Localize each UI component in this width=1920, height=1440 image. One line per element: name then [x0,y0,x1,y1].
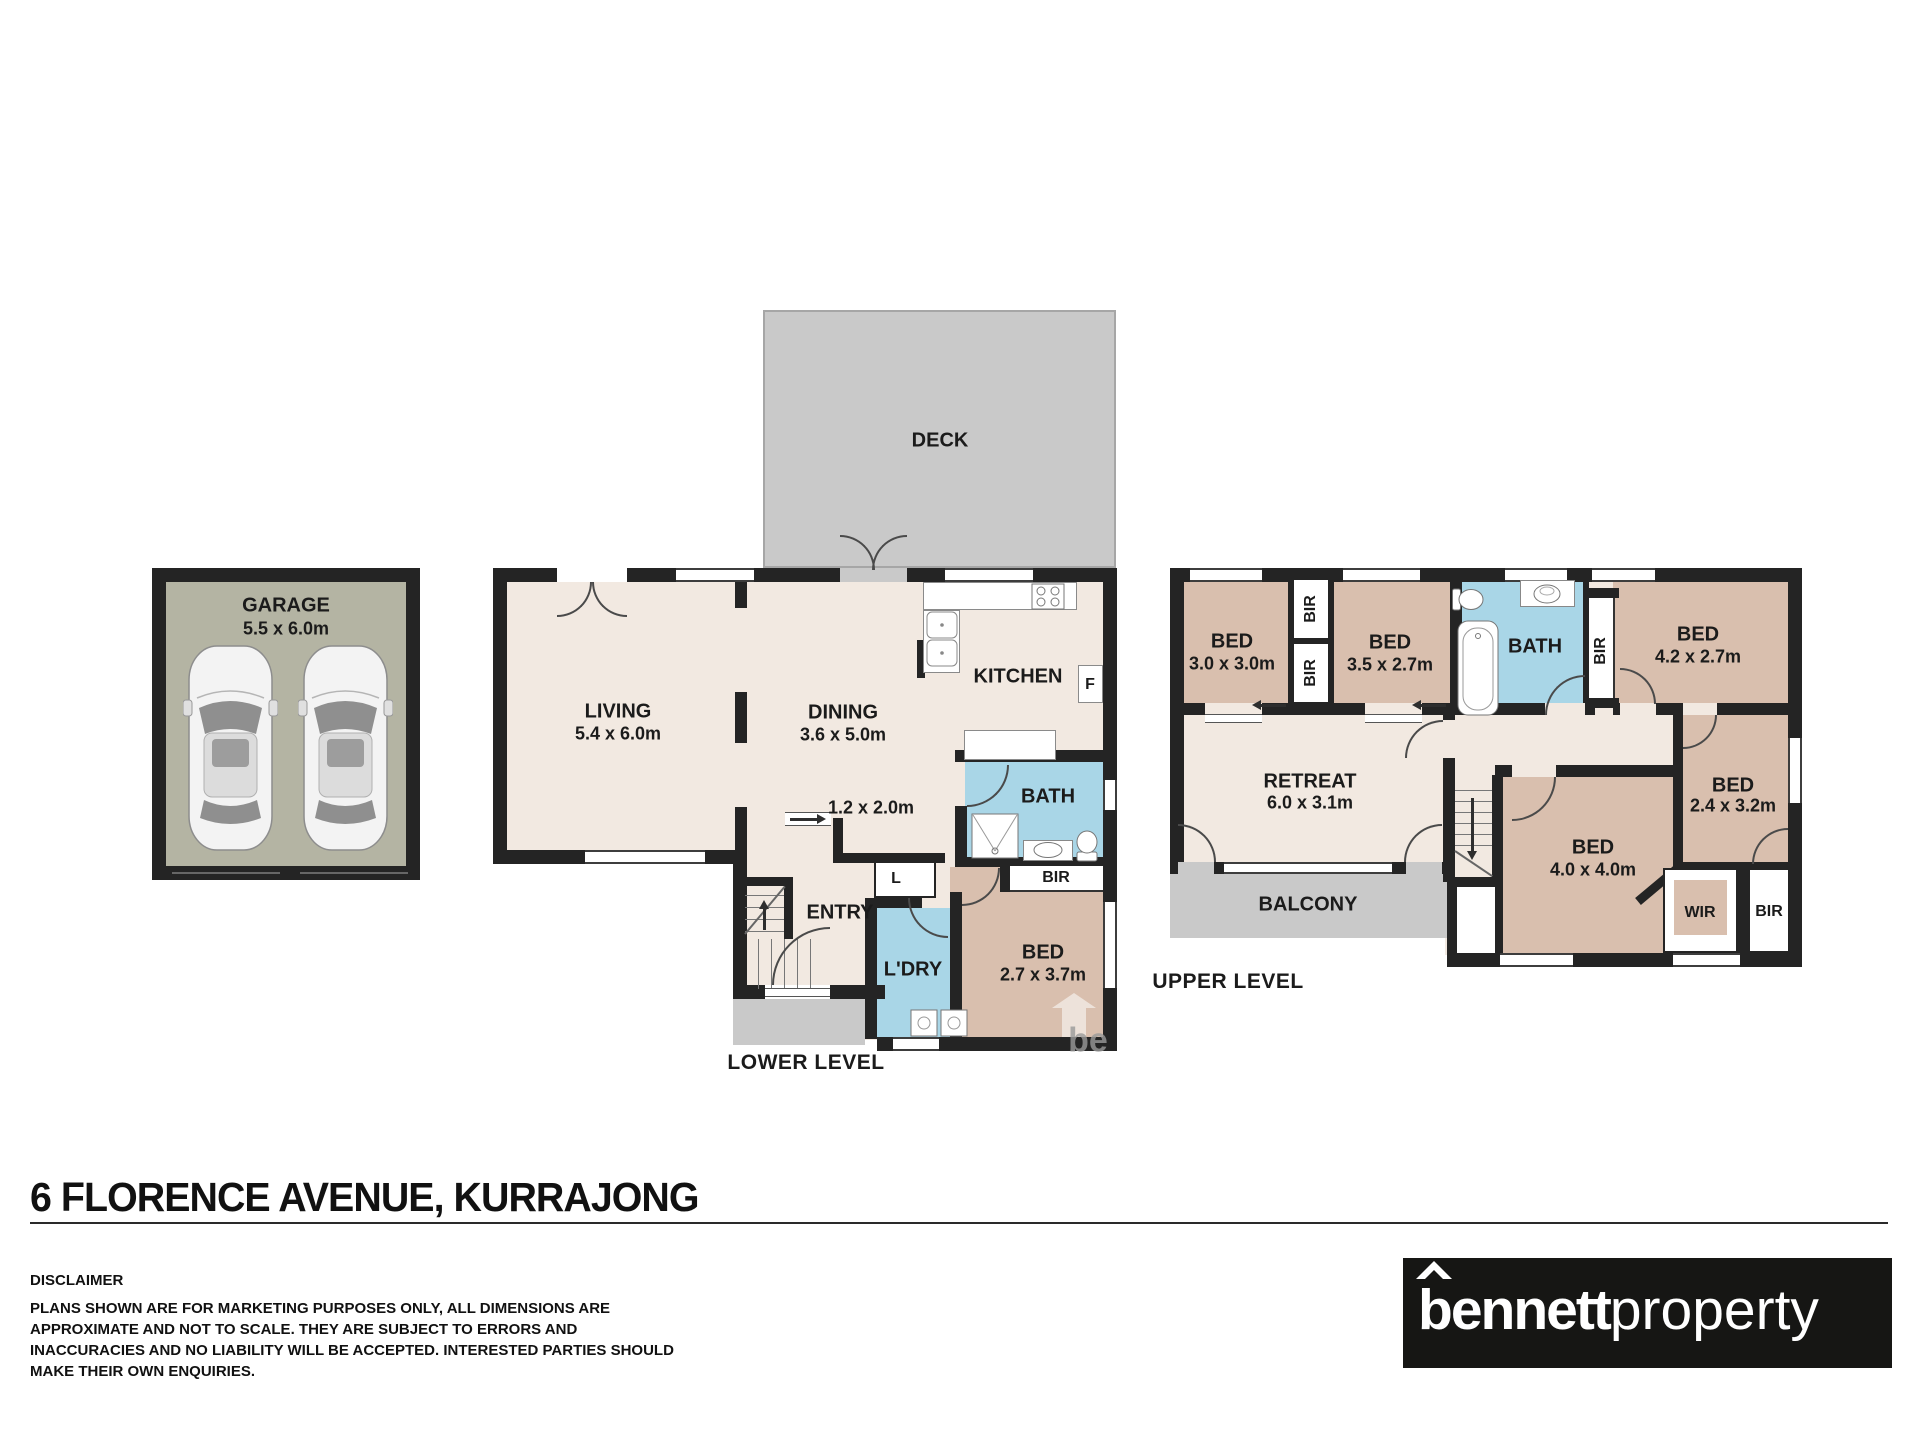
linen-closet [874,861,936,898]
stair-tread [1455,845,1492,846]
bir-label-lower: BIR [1042,869,1070,887]
door-opening [1620,703,1656,715]
window [1343,568,1420,582]
vanity-icon [1023,840,1073,861]
agency-logo: bennettproperty [1403,1258,1892,1368]
direction-arrow [1260,704,1286,707]
stair-tread [758,939,759,989]
bathtub-icon [1457,620,1499,716]
arrowhead [759,900,769,909]
direction-arrow [1471,798,1474,852]
garage-door-line [172,872,280,874]
upper-level-label: UPPER LEVEL [1152,970,1303,994]
linen-label: L [891,870,901,888]
window [1190,568,1262,582]
garage-door-line [300,872,408,874]
direction-arrow [1420,704,1446,707]
window [585,850,705,864]
door-opening [840,568,907,582]
room-label-retreat: RETREAT [1264,771,1357,794]
room-label-bath-lower: BATH [1021,786,1075,809]
shower-icon [971,813,1019,859]
logo-text: bennettproperty [1418,1282,1819,1339]
room-label-dining: DINING [808,702,878,725]
room-label-entry: ENTRY [806,902,873,925]
disclaimer-body: PLANS SHOWN ARE FOR MARKETING PURPOSES O… [30,1298,685,1382]
window [1673,953,1740,967]
wall [1583,698,1619,708]
threshold [1205,714,1262,723]
stove-icon [1031,583,1065,610]
stair-tread [745,931,784,932]
bir-label-top-b: BIR [1302,659,1320,687]
room-label-living: LIVING [585,701,652,724]
room-label-bed-35: BED [1369,632,1411,655]
stair-tread [1455,801,1492,802]
room-label-garage: GARAGE [242,595,330,618]
room-dims-garage: 5.5 x 6.0m [243,619,329,640]
window [1224,862,1392,874]
wall [1447,882,1457,957]
car-icon [298,638,393,858]
door-opening [557,568,627,582]
double-sink-icon [925,610,959,668]
wall [406,568,420,880]
car-icon [183,638,278,858]
room-label-bed-lower: BED [1022,942,1064,965]
room-dims-bed-35: 3.5 x 2.7m [1347,655,1433,676]
lower-level-label: LOWER LEVEL [727,1051,884,1075]
wall [735,692,747,743]
wall [1673,715,1683,872]
bir-label-wir: BIR [1755,903,1783,921]
room-dims-dining: 3.6 x 5.0m [800,725,886,746]
stair-tread [1455,834,1492,835]
arrowhead [1467,851,1477,860]
porch-area [733,997,865,1045]
store-dims: 1.2 x 2.0m [828,798,914,819]
property-address: 6 FLORENCE AVENUE, KURRAJONG [30,1174,699,1221]
arrowhead [817,814,826,824]
wall [733,850,747,999]
window [893,1037,939,1051]
room-dims-retreat: 6.0 x 3.1m [1267,793,1353,814]
room-dims-bed-24: 2.4 x 3.2m [1690,796,1776,817]
toilet-icon [1074,830,1100,862]
room-label-balcony: BALCONY [1259,894,1358,917]
room-label-bed-30: BED [1211,631,1253,654]
room-label-bed-42: BED [1677,624,1719,647]
arrowhead [1412,700,1421,710]
window [1592,568,1655,582]
room-label-deck: DECK [912,430,969,453]
divider-line [30,1222,1888,1224]
window [1788,738,1802,803]
window [945,568,1033,582]
room-label-bed-24: BED [1712,775,1754,798]
wall [735,582,747,608]
kitchen-counter [964,730,1056,760]
wall [493,568,507,862]
direction-arrow [763,908,766,930]
window [1103,780,1117,810]
wall [1170,568,1802,582]
logo-text-light: property [1610,1278,1819,1342]
door-opening [1178,862,1214,874]
wall [955,806,967,859]
threshold [1365,714,1422,723]
stair-tread [1455,790,1492,791]
toilet-icon [1452,586,1484,614]
bir-label-top-a: BIR [1302,595,1320,623]
wir-label: WIR [1684,904,1715,922]
door-opening [1443,720,1455,758]
room-dims-bed-lower: 2.7 x 3.7m [1000,965,1086,986]
vanity-icon [1520,580,1575,607]
logo-text-bold: bennett [1418,1278,1610,1342]
room-dims-bed-40: 4.0 x 4.0m [1550,860,1636,881]
door-opening [1406,862,1442,874]
fridge-label: F [1085,676,1095,694]
wall [1583,588,1619,598]
room-label-laundry: L'DRY [884,959,942,982]
stair-tread [1455,812,1492,813]
wall [1000,866,1010,892]
room-label-bath-upper: BATH [1508,636,1562,659]
window [676,568,754,582]
floorplan-canvas: GARAGE 5.5 x 6.0m DECK LIVING 5.4 x 6.0m… [0,0,1920,1440]
threshold [765,988,830,997]
bir-label-bath: BIR [1592,637,1610,665]
laundry-appliance-icon [910,1008,968,1038]
room-dims-bed-42: 4.2 x 2.7m [1655,647,1741,668]
wall [152,568,420,582]
room-label-kitchen: KITCHEN [974,666,1063,689]
mask [1182,938,1445,966]
room-label-bed-40: BED [1572,837,1614,860]
door-opening [1512,765,1556,777]
wall [152,568,166,880]
room-dims-bed-30: 3.0 x 3.0m [1189,654,1275,675]
room-dims-living: 5.4 x 6.0m [575,724,661,745]
wall [1738,868,1748,953]
door-opening [1683,703,1717,715]
window [1103,902,1117,988]
wall [735,807,747,852]
watermark-text: be [1068,1022,1108,1061]
stair-tread [1455,823,1492,824]
arrowhead [1252,700,1261,710]
direction-arrow [790,818,818,821]
window [1500,953,1573,967]
disclaimer-heading: DISCLAIMER [30,1272,123,1289]
wall [1492,775,1502,887]
